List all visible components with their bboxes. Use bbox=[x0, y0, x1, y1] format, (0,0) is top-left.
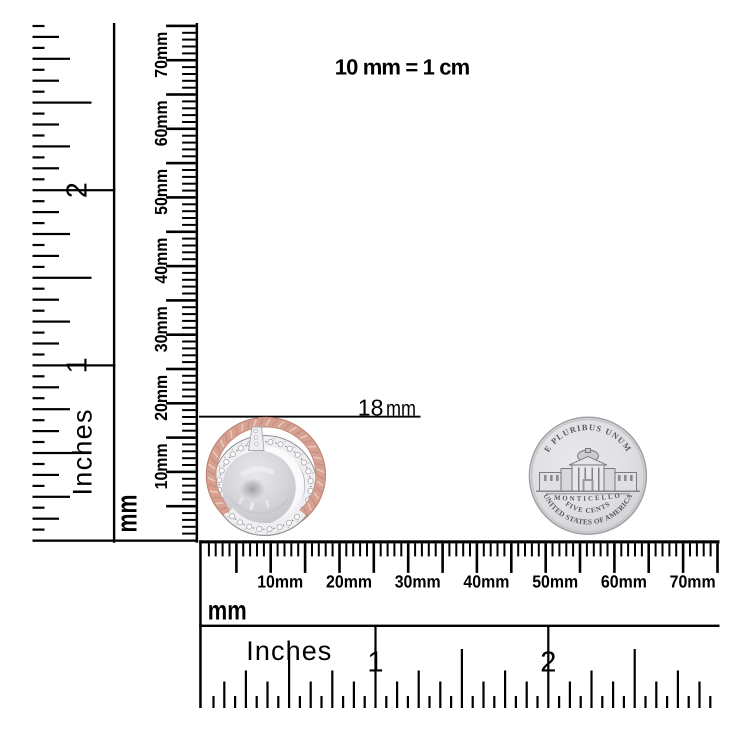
svg-text:mm: mm bbox=[208, 596, 247, 626]
svg-text:2: 2 bbox=[61, 182, 93, 198]
svg-text:mm: mm bbox=[386, 397, 416, 421]
svg-text:mm: mm bbox=[112, 495, 143, 533]
svg-text:10mm: 10mm bbox=[151, 443, 171, 489]
svg-text:Inches: Inches bbox=[246, 636, 331, 666]
svg-text:20mm: 20mm bbox=[151, 375, 171, 421]
svg-text:70mm: 70mm bbox=[151, 32, 171, 78]
svg-text:40mm: 40mm bbox=[151, 238, 171, 284]
svg-text:30mm: 30mm bbox=[395, 572, 441, 592]
svg-text:2: 2 bbox=[540, 646, 556, 678]
svg-text:40mm: 40mm bbox=[463, 572, 509, 592]
svg-text:20mm: 20mm bbox=[326, 572, 372, 592]
svg-text:10mm: 10mm bbox=[257, 572, 303, 592]
svg-text:60mm: 60mm bbox=[151, 100, 171, 146]
svg-text:50mm: 50mm bbox=[151, 169, 171, 215]
svg-text:30mm: 30mm bbox=[151, 306, 171, 352]
svg-text:10 mm = 1 cm: 10 mm = 1 cm bbox=[335, 54, 471, 79]
svg-text:1: 1 bbox=[61, 357, 93, 373]
svg-text:60mm: 60mm bbox=[601, 572, 647, 592]
svg-text:18: 18 bbox=[358, 395, 384, 421]
svg-text:1: 1 bbox=[367, 646, 383, 678]
svg-text:50mm: 50mm bbox=[532, 572, 578, 592]
svg-text:Inches: Inches bbox=[68, 410, 98, 496]
svg-text:70mm: 70mm bbox=[670, 572, 716, 592]
